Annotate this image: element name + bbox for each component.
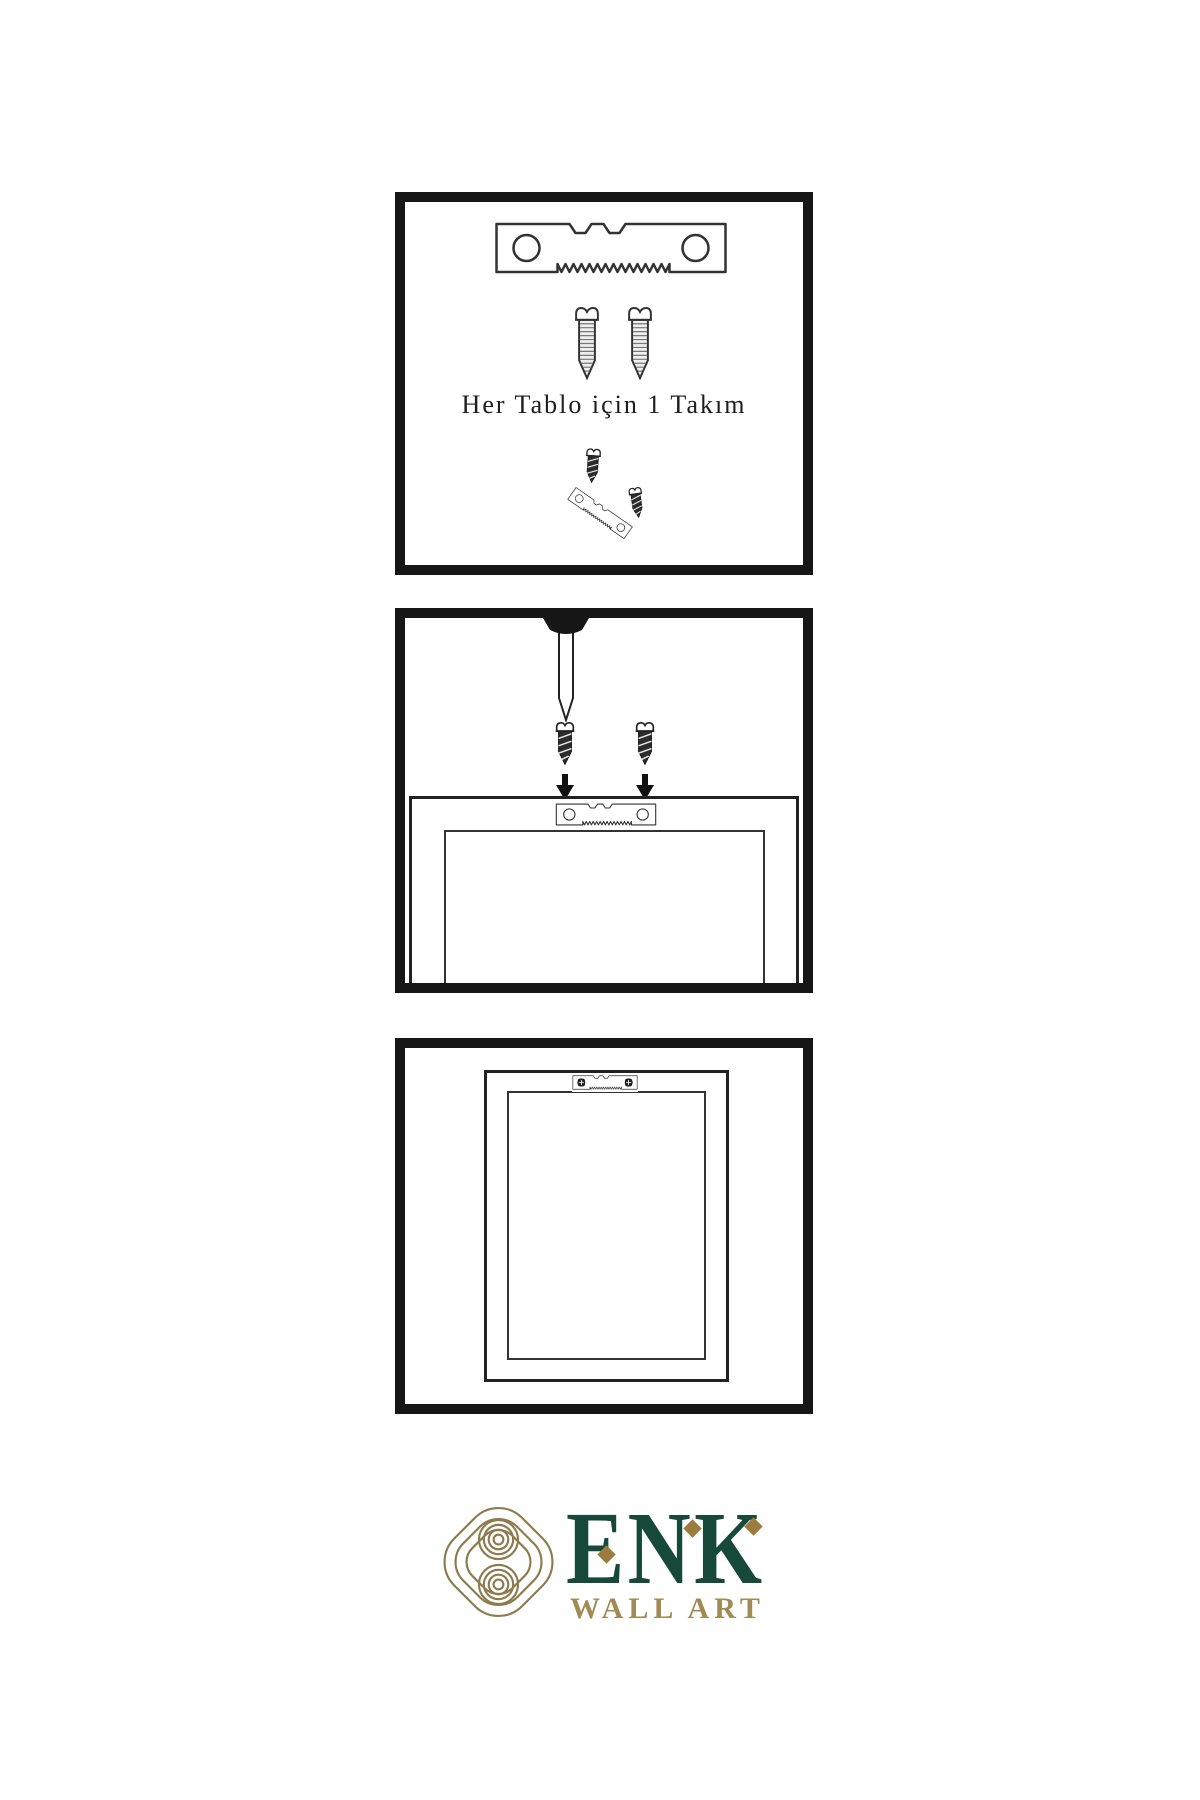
instruction-sheet: Her Tablo için 1 Takım bbox=[0, 0, 1200, 1800]
sawtooth-hanger-icon bbox=[493, 220, 729, 276]
frame-inner-outline bbox=[507, 1091, 706, 1360]
screw-hanger-assembly-icon bbox=[548, 442, 660, 542]
nail-icon bbox=[542, 618, 590, 722]
mounted-hanger-with-screws-icon bbox=[572, 1073, 638, 1092]
screw-dark-icon bbox=[633, 720, 657, 768]
step-2-panel bbox=[395, 608, 813, 993]
step-3-panel bbox=[395, 1038, 813, 1414]
brand-name: ENK bbox=[566, 1506, 765, 1592]
kit-caption: Her Tablo için 1 Takım bbox=[405, 390, 803, 420]
screw-dark-icon bbox=[553, 720, 577, 768]
sawtooth-hanger-icon bbox=[555, 802, 657, 827]
frame-inner-outline bbox=[444, 830, 765, 993]
brand-subtitle: WALL ART bbox=[570, 1592, 765, 1626]
screw-icon bbox=[624, 305, 656, 382]
screw-icon bbox=[571, 305, 603, 382]
knot-logo-icon bbox=[435, 1496, 562, 1628]
step-1-panel: Her Tablo için 1 Takım bbox=[395, 192, 813, 575]
